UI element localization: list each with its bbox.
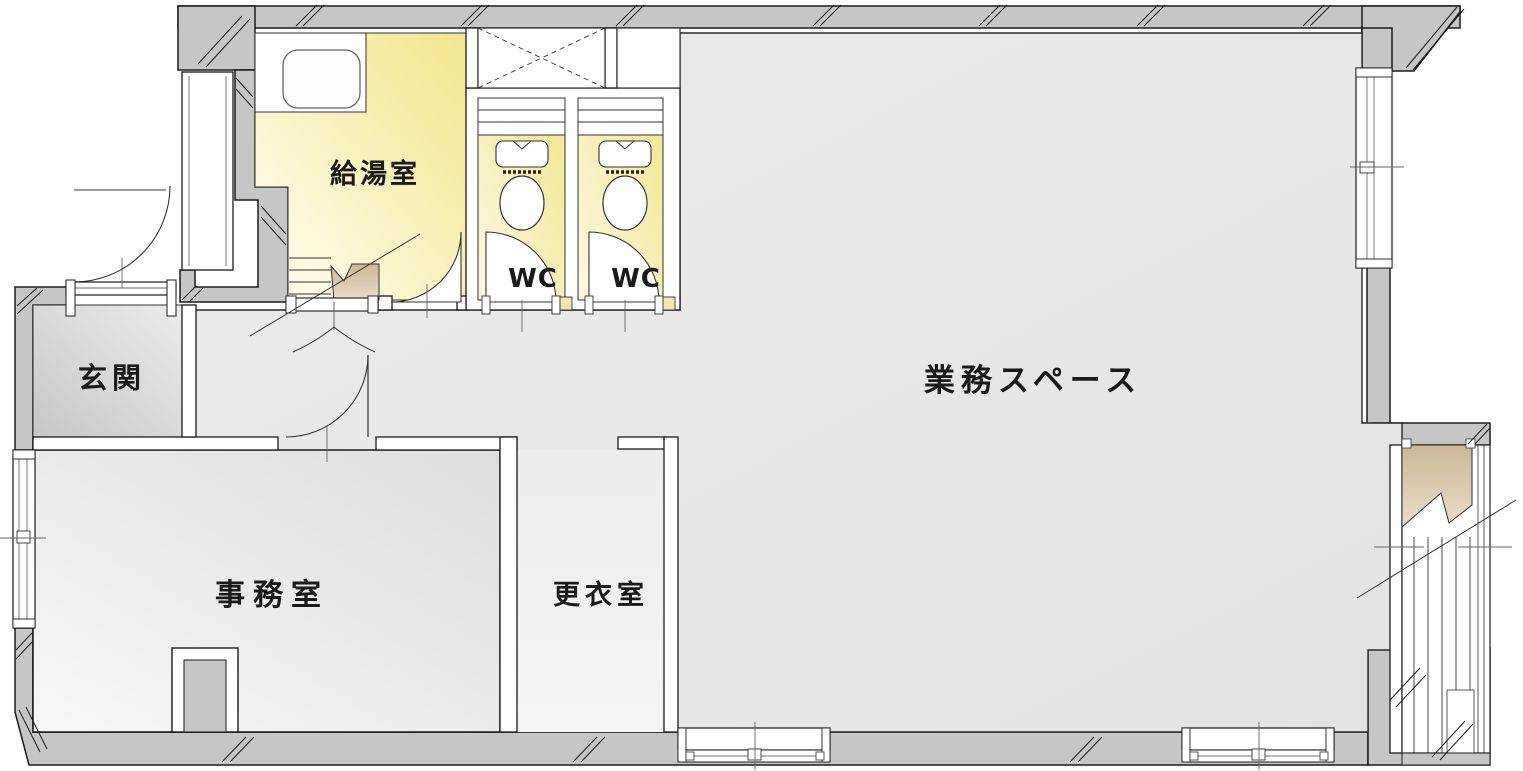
entrance-label: 玄関: [78, 361, 146, 395]
floor-plan-drawing: 給湯室 WC WC 玄関 業務スペース 事務室 更衣室: [0, 0, 1523, 771]
wall-stub: [560, 297, 572, 310]
kitchen-front-wall-left: [378, 296, 392, 310]
wc-shelf-1: [478, 98, 565, 135]
office-top-wall-right: [376, 437, 517, 450]
door-jamb: [66, 280, 75, 316]
wall-right-mid: [1367, 266, 1390, 427]
work-space-label: 業務スペース: [924, 363, 1142, 399]
changing-room-label: 更衣室: [553, 579, 649, 611]
door-jamb: [167, 280, 176, 316]
wall-topleft-block: [178, 6, 255, 70]
stair-lower-landing: [1447, 690, 1474, 753]
stair-bottom-wall: [1402, 753, 1490, 765]
office-top-wall-left: [33, 437, 278, 450]
office-column-core: [184, 660, 226, 732]
south-window-2: [1182, 728, 1334, 762]
changing-room-east-wall: [664, 437, 678, 732]
office-east-wall: [500, 437, 517, 732]
office-west-window: [13, 450, 35, 628]
wc1-label: WC: [508, 264, 558, 294]
service-box: [617, 28, 680, 88]
entrance-divider-wall: [182, 305, 196, 437]
entrance-door: [66, 186, 176, 316]
kitchen-east-wall: [466, 28, 478, 88]
wc2-label: WC: [611, 264, 661, 294]
duct-shaft-cross-box: [478, 28, 605, 88]
wall-top-band: [178, 6, 1460, 28]
exterior-staircase: [1402, 439, 1490, 765]
wall-stub: [663, 297, 675, 310]
porch-side-panel: [182, 72, 233, 270]
duct-gap-wall: [605, 28, 617, 88]
floor-plan-page: 給湯室 WC WC 玄関 業務スペース 事務室 更衣室: [0, 0, 1523, 771]
wall-right-upper: [1362, 28, 1392, 71]
office-label: 事務室: [215, 578, 329, 613]
kitchenette-label: 給湯室: [330, 158, 420, 190]
kitchen-counter: [255, 33, 366, 112]
work-space-east-window: [1356, 68, 1392, 268]
changing-room-lip-wall: [618, 437, 666, 449]
kitchen-sink: [283, 50, 360, 108]
wc-shelf-2: [578, 98, 663, 135]
south-window-1: [678, 728, 830, 762]
